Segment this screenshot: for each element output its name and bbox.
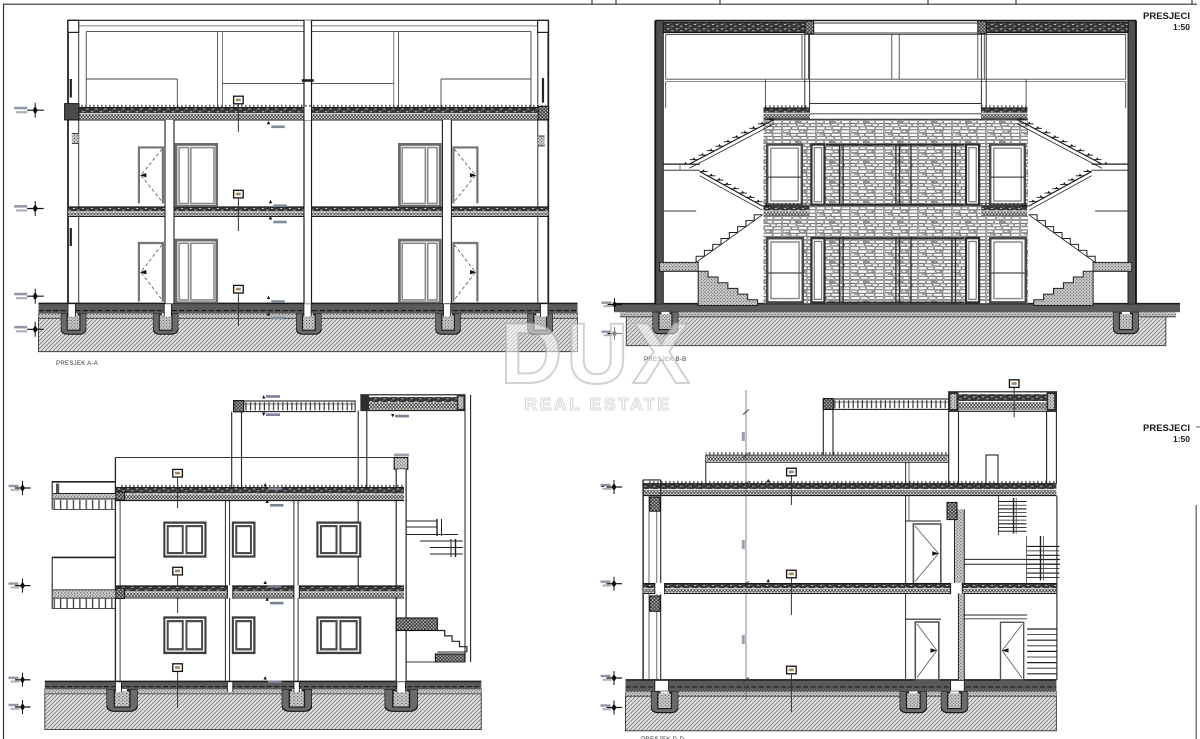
svg-text:1:50: 1:50: [1173, 434, 1190, 444]
svg-text:DUX: DUX: [500, 306, 694, 402]
svg-text:PRESJECI: PRESJECI: [1143, 423, 1190, 434]
svg-text:REAL ESTATE: REAL ESTATE: [524, 394, 671, 414]
svg-text:PRESJEK A-A: PRESJEK A-A: [56, 360, 99, 367]
svg-text:PRESJECI: PRESJECI: [1143, 11, 1190, 22]
svg-text:1:50: 1:50: [1173, 22, 1190, 32]
